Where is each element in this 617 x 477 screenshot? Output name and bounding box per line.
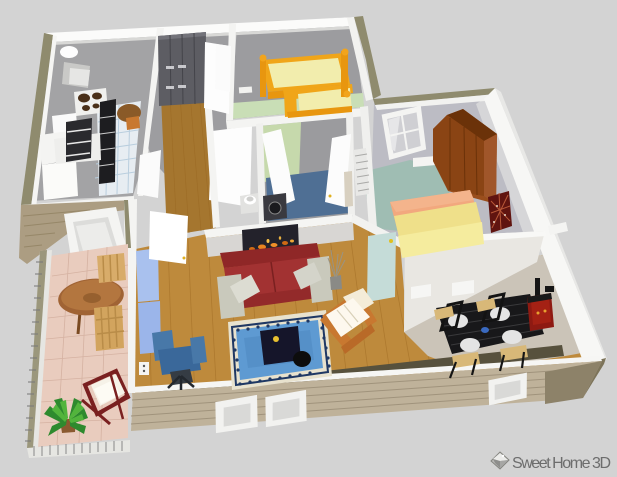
svg-text:Sweet Home 3D: Sweet Home 3D [512, 455, 611, 472]
